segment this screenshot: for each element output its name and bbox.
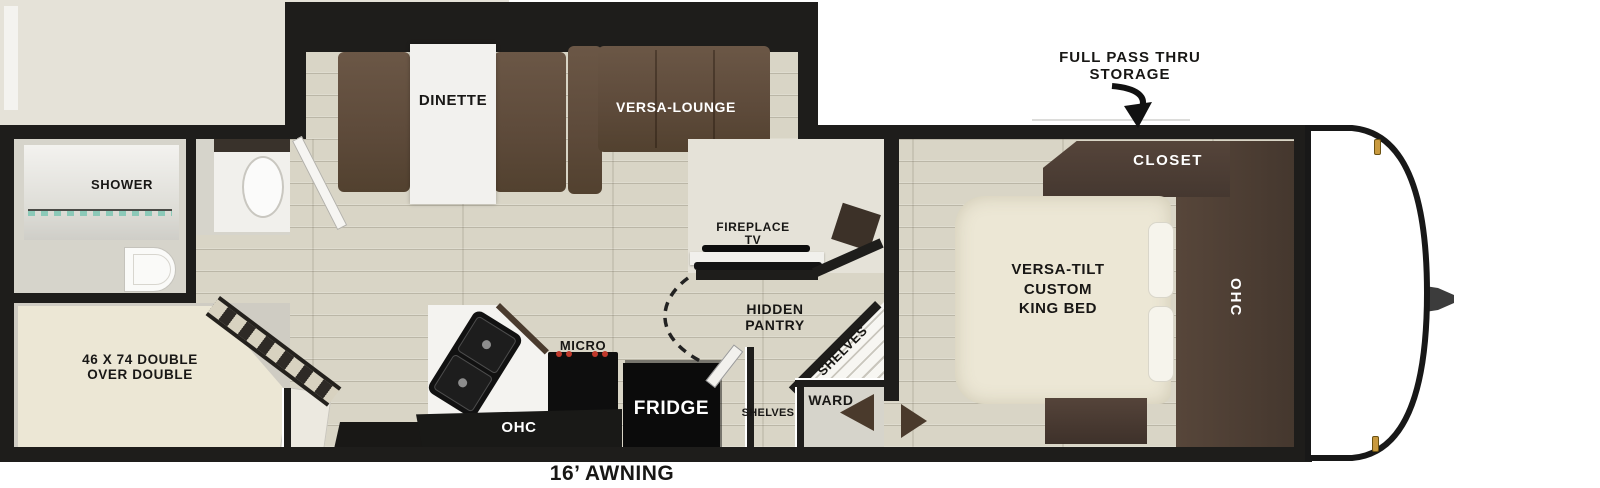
clearance-light-icon (1372, 436, 1379, 452)
storage-arrow-head (1124, 102, 1152, 128)
door-swing-path (665, 278, 702, 362)
overlay-graphics (0, 0, 1600, 488)
storage-callout-line2: STORAGE (1090, 66, 1171, 83)
front-cap (1308, 128, 1427, 458)
storage-callout: FULL PASS THRU STORAGE (1030, 50, 1230, 84)
clearance-light-icon (1374, 139, 1381, 155)
awning-label: 16’ AWNING (492, 462, 732, 486)
storage-callout-line1: FULL PASS THRU (1059, 49, 1201, 66)
rv-floorplan: DINETTE VERSA-LOUNGE SHOWER 46 X 74 DOUB… (0, 0, 1600, 488)
